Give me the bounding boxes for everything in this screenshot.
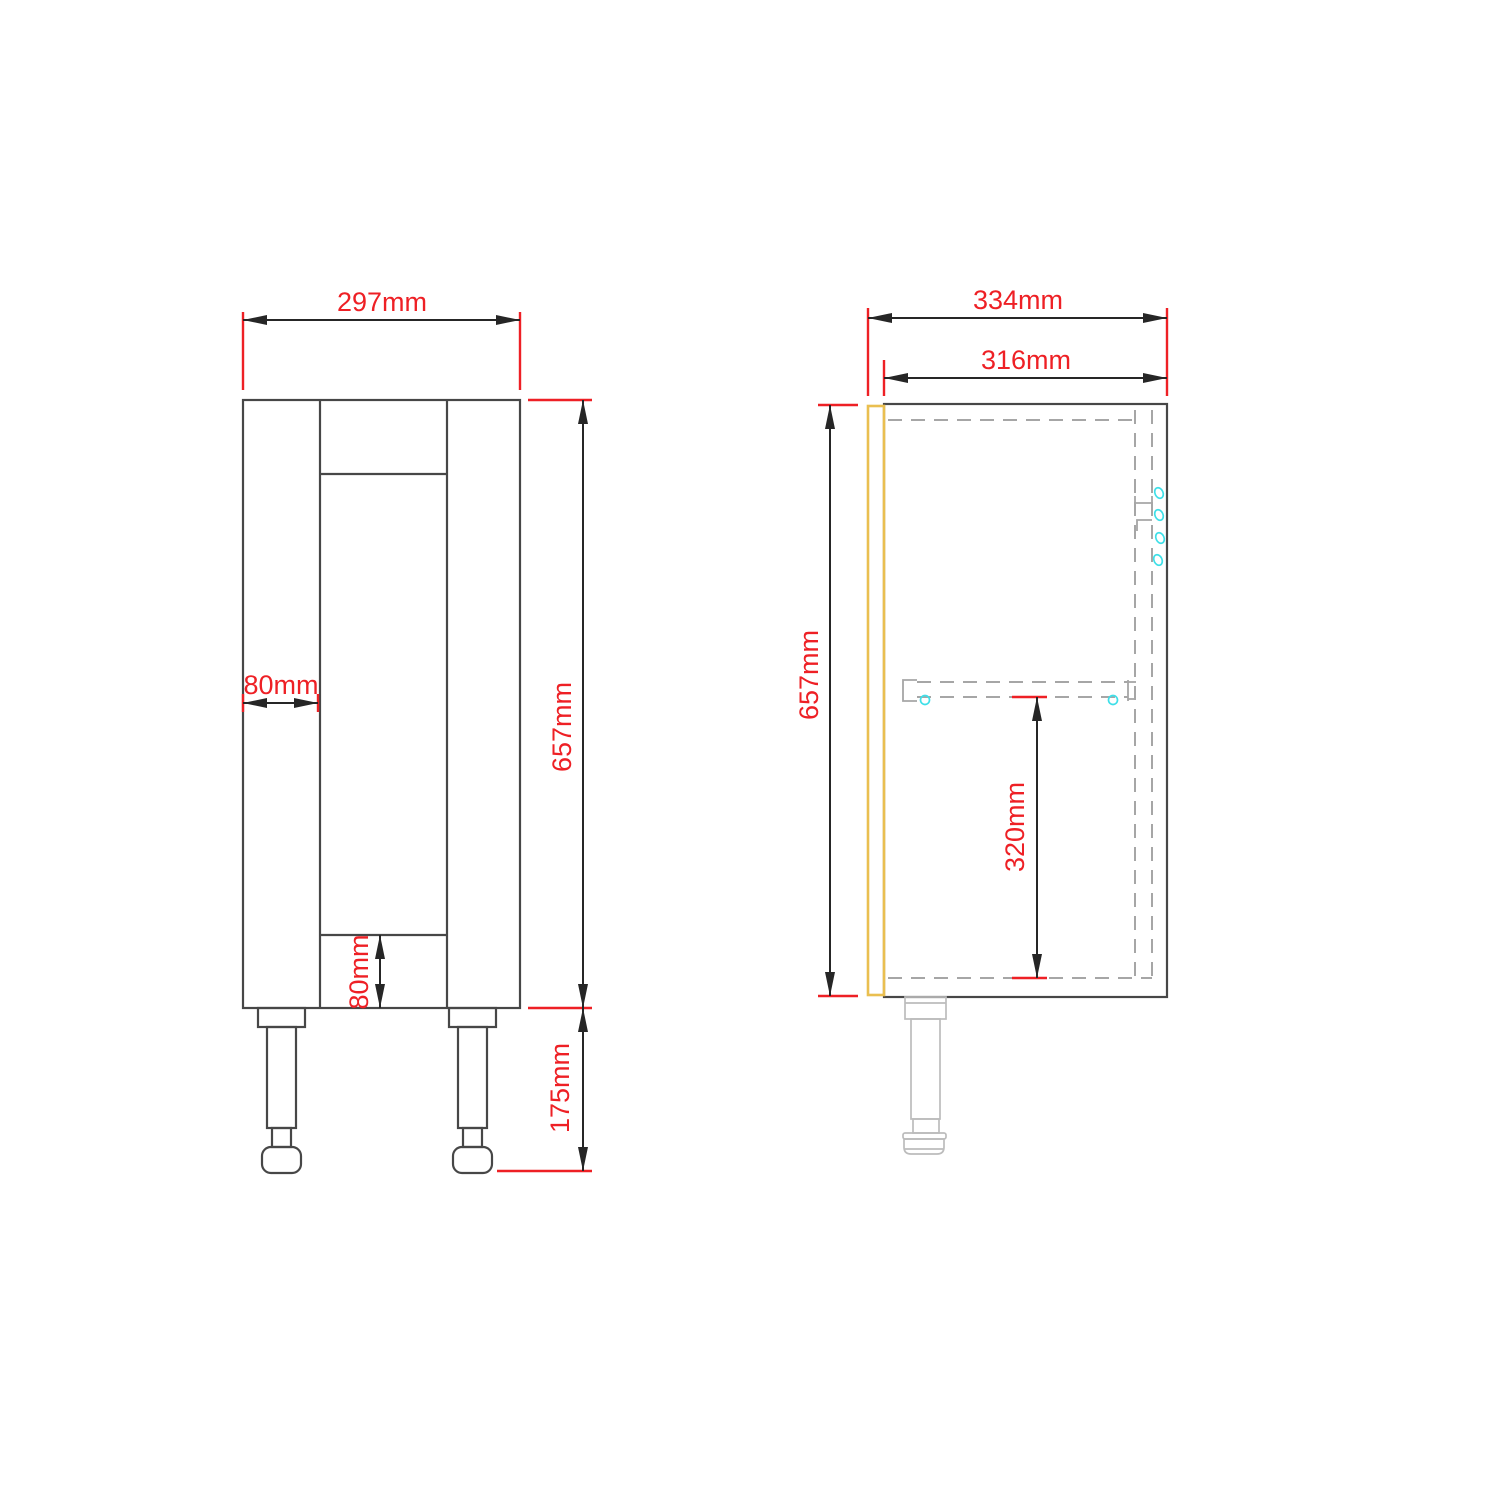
dim-side-carcass-depth: 316mm (884, 345, 1167, 396)
dim-front-bottom-rail-height: 80mm (344, 934, 380, 1009)
hinge-plate-detail (1135, 486, 1166, 566)
hinge-screw-hole (1153, 508, 1165, 521)
dimension-label: 80mm (344, 934, 374, 1009)
shelf-front-bracket (903, 680, 917, 701)
leg-foot-flange (903, 1133, 946, 1139)
dimension-label: 297mm (337, 287, 427, 317)
front-leg-right (449, 1008, 496, 1173)
dimension-label: 320mm (1000, 782, 1030, 872)
leg-mounting-plate (905, 997, 946, 1019)
leg-foot (453, 1147, 492, 1173)
dim-front-leg-height: 175mm (497, 1008, 592, 1171)
hinge-plate-lower-bracket (1137, 520, 1152, 531)
side-view: 334mm 316mm 657mm 320mm (794, 285, 1167, 1154)
leg-mounting-plate (449, 1008, 496, 1027)
leg-foot (262, 1147, 301, 1173)
dim-front-overall-width: 297mm (243, 287, 520, 390)
hinge-screw-hole (1152, 553, 1164, 566)
leg-neck (463, 1128, 482, 1147)
dim-side-shelf-height: 320mm (1000, 697, 1047, 978)
leg-mounting-plate (258, 1008, 305, 1027)
dimension-label: 80mm (243, 670, 318, 700)
leg-stem (458, 1027, 487, 1128)
hinge-screw-hole (1153, 486, 1165, 499)
side-carcass-outline (884, 404, 1167, 997)
front-leg-left (258, 1008, 305, 1173)
leg-neck (272, 1128, 291, 1147)
technical-drawing-canvas: 297mm 80mm 80mm 657mm 175mm (0, 0, 1500, 1500)
dim-side-carcass-height: 657mm (794, 405, 858, 996)
dimension-label: 334mm (973, 285, 1063, 315)
leg-foot (904, 1139, 944, 1154)
shelf-detail (903, 680, 1136, 705)
dimension-label: 657mm (547, 682, 577, 772)
leg-stem (267, 1027, 296, 1128)
leg-stem (911, 1019, 940, 1119)
cabinet-technical-drawing: 297mm 80mm 80mm 657mm 175mm (0, 0, 1500, 1500)
dimension-label: 316mm (981, 345, 1071, 375)
dim-side-overall-depth: 334mm (868, 285, 1167, 396)
hinge-screw-hole (1154, 531, 1166, 544)
dim-front-carcass-height: 657mm (528, 400, 592, 1008)
side-door-panel (868, 406, 884, 995)
dim-front-stile-width: 80mm (243, 670, 319, 712)
side-leg (903, 997, 946, 1154)
front-view: 297mm 80mm 80mm 657mm 175mm (243, 287, 592, 1173)
dimension-label: 657mm (794, 630, 824, 720)
leg-neck (913, 1119, 939, 1133)
dimension-label: 175mm (545, 1043, 575, 1133)
